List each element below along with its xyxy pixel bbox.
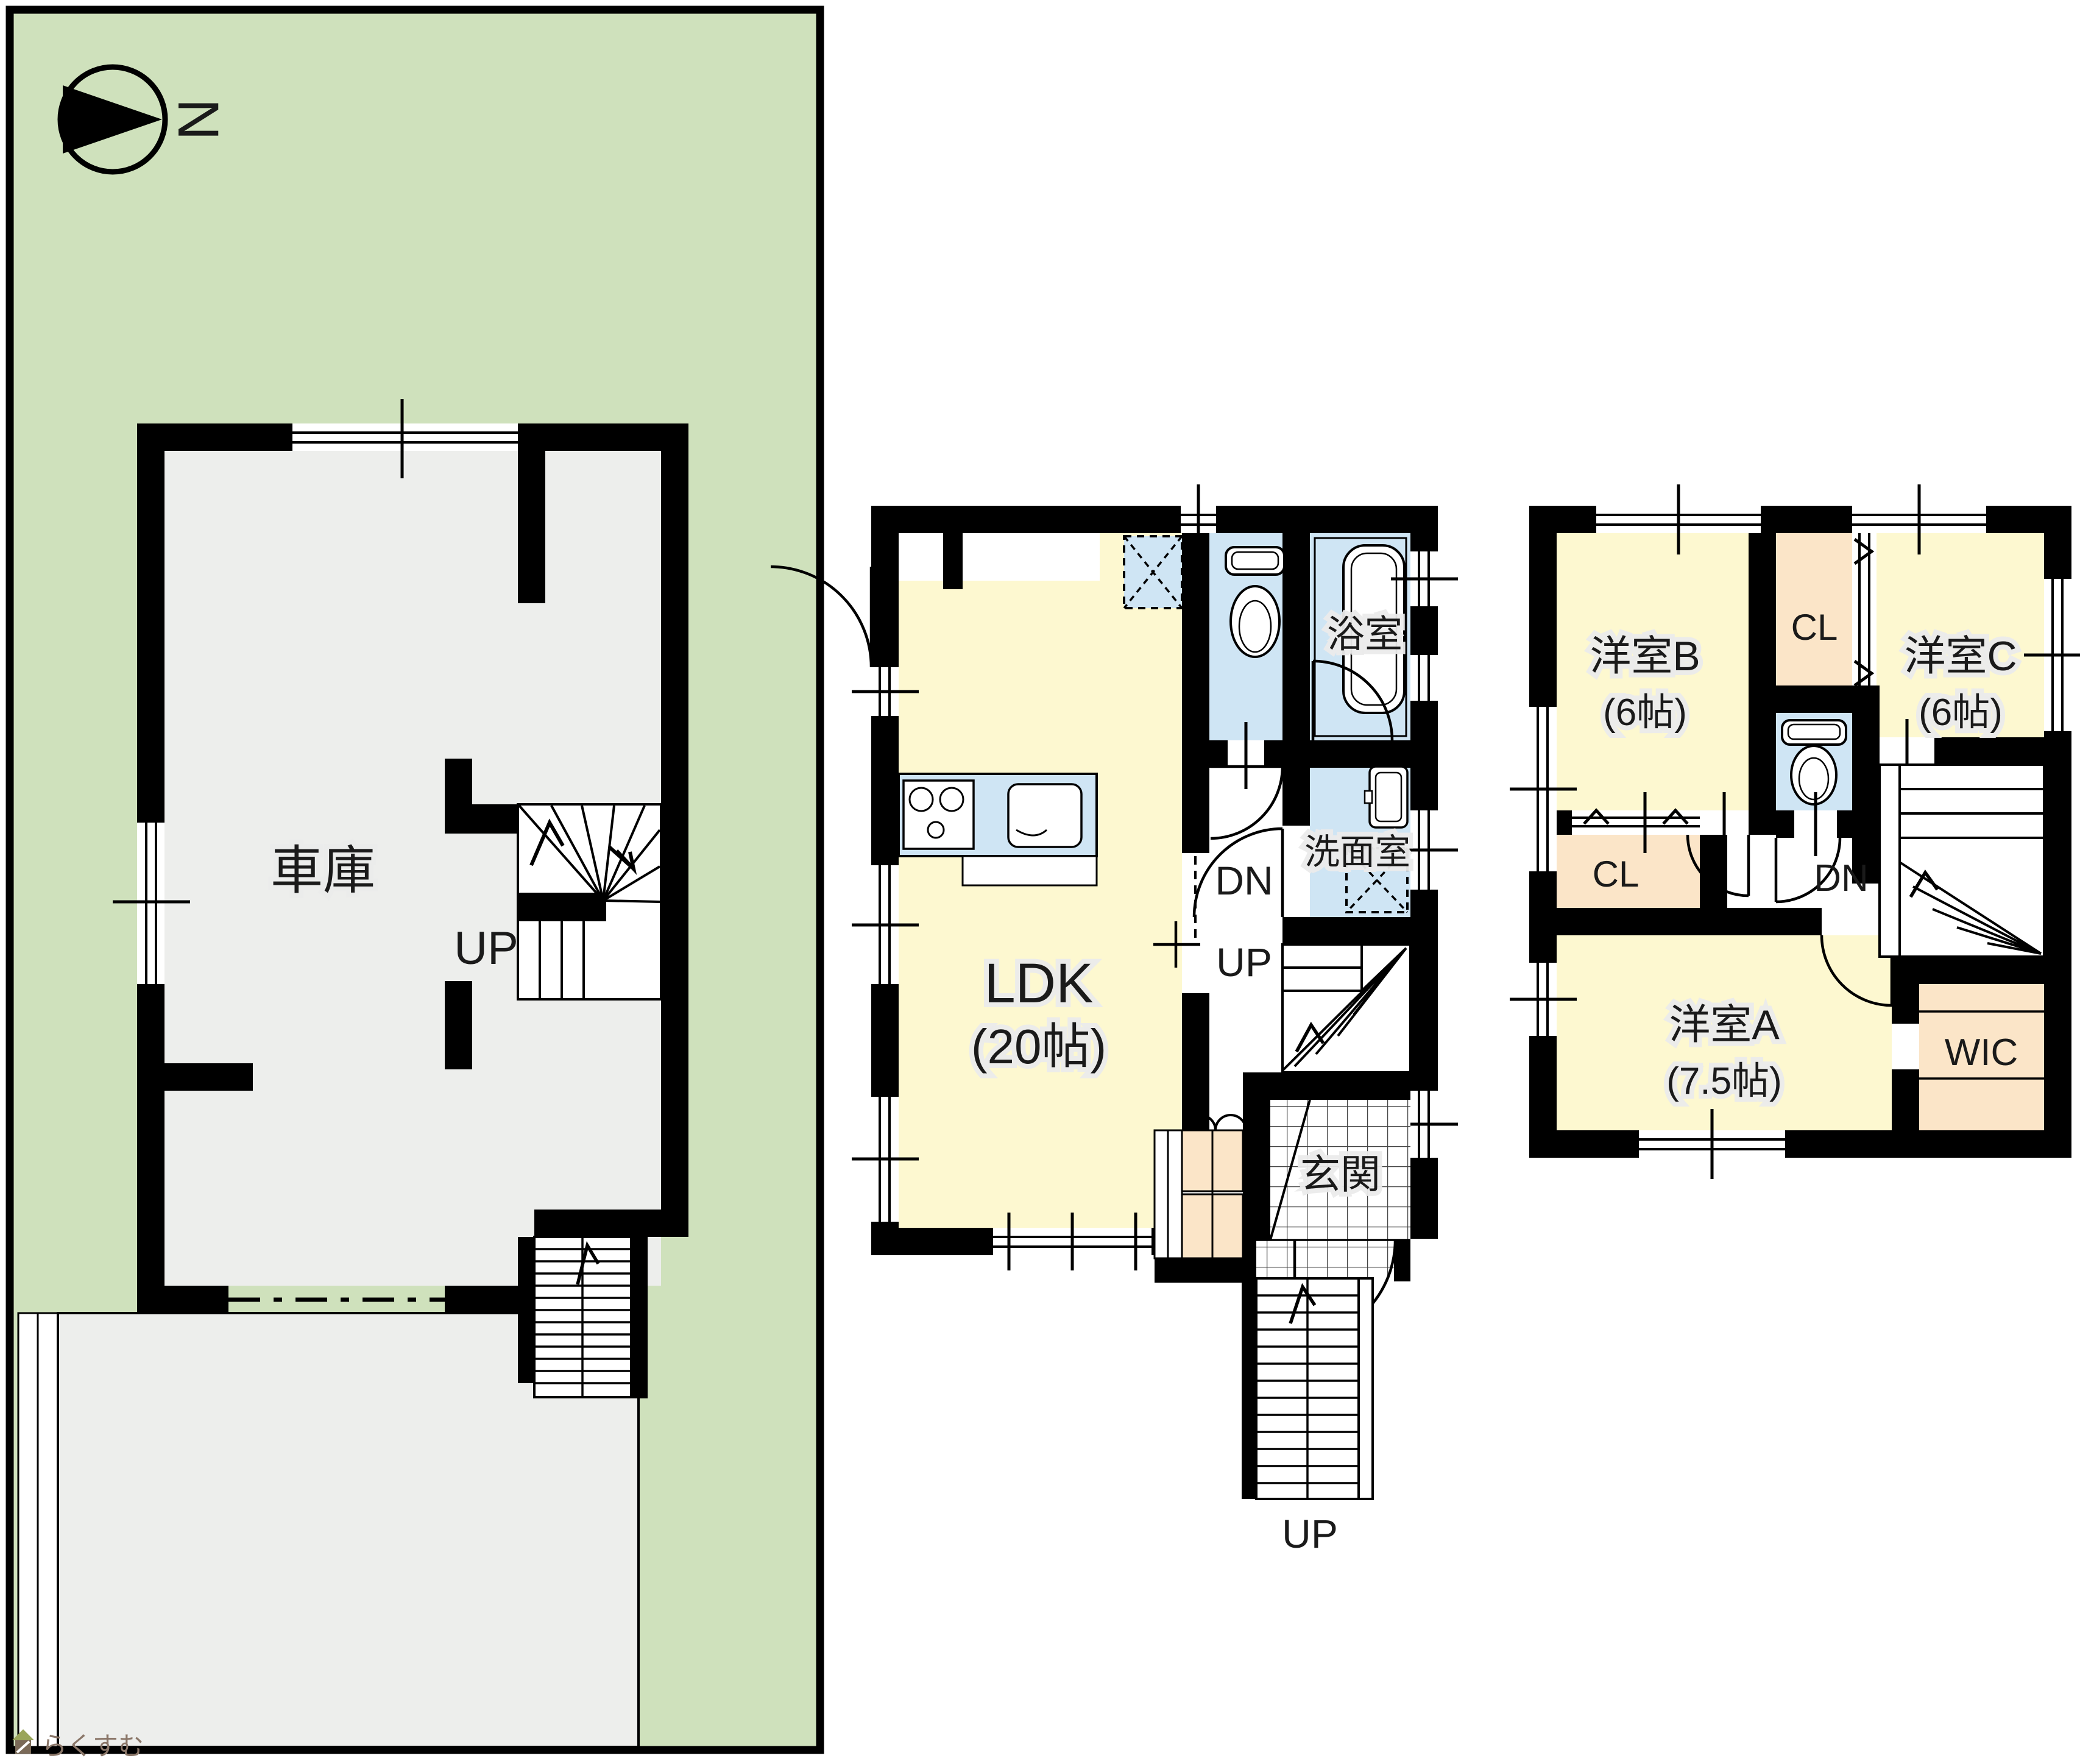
refrigerator-space bbox=[1124, 536, 1182, 608]
floor-plan-page: N bbox=[0, 0, 2080, 1764]
room-c-label: 洋室C bbox=[1904, 633, 2017, 679]
toilet-icon-1f bbox=[1226, 547, 1284, 657]
first-floor-plan: LDK (20帖) 浴室 洗面室 玄関 DN UP UP bbox=[771, 484, 1458, 1556]
washroom-label: 洗面室 bbox=[1304, 832, 1410, 872]
closet-b-label: CL bbox=[1593, 854, 1640, 894]
room-a-label: 洋室A bbox=[1669, 1002, 1780, 1048]
north-label: N bbox=[166, 99, 230, 141]
first-floor-stair bbox=[1282, 944, 1410, 1072]
entrance-label: 玄関 bbox=[1300, 1152, 1381, 1197]
garage-label: 車庫 bbox=[271, 841, 375, 900]
garage-level-plan: N bbox=[10, 10, 820, 1750]
entrance-exterior-stair bbox=[1256, 1278, 1373, 1499]
second-floor-stair bbox=[1880, 765, 2044, 957]
dn-label-2f: DN bbox=[1814, 857, 1869, 899]
watermark-text: らくすむ bbox=[41, 1732, 144, 1760]
second-floor-plan: 洋室B (6帖) 洋室C (6帖) CL CL DN 洋室A (7.5帖) WI… bbox=[1510, 484, 2080, 1179]
garage-exterior-stair bbox=[534, 1237, 631, 1397]
bath-label: 浴室 bbox=[1327, 614, 1403, 656]
sink-icon bbox=[1008, 784, 1081, 847]
porch bbox=[1256, 1240, 1394, 1278]
room-b-label: 洋室B bbox=[1590, 633, 1700, 679]
outdoor-up-label: UP bbox=[1282, 1511, 1338, 1556]
up-label-1f: UP bbox=[1216, 940, 1272, 985]
room-b-size-label: (6帖) bbox=[1603, 692, 1687, 734]
closet-c-door bbox=[1852, 533, 1877, 685]
garage-up-label: UP bbox=[454, 923, 518, 974]
ldk-alcove bbox=[899, 533, 1100, 581]
counter-ledge bbox=[963, 856, 1097, 885]
dn-label-1f: DN bbox=[1215, 858, 1273, 903]
floor-plan-image: N bbox=[0, 0, 2080, 1764]
closet-1f bbox=[1155, 1115, 1246, 1258]
garage-stair bbox=[518, 804, 661, 999]
closet-top-label: CL bbox=[1791, 607, 1838, 648]
ldk-size-label: (20帖) bbox=[971, 1019, 1106, 1074]
ldk-label: LDK bbox=[985, 952, 1094, 1015]
wic-label: WIC bbox=[1945, 1032, 2018, 1074]
room-a-size-label: (7.5帖) bbox=[1666, 1060, 1781, 1102]
room-c-size-label: (6帖) bbox=[1919, 692, 2003, 734]
